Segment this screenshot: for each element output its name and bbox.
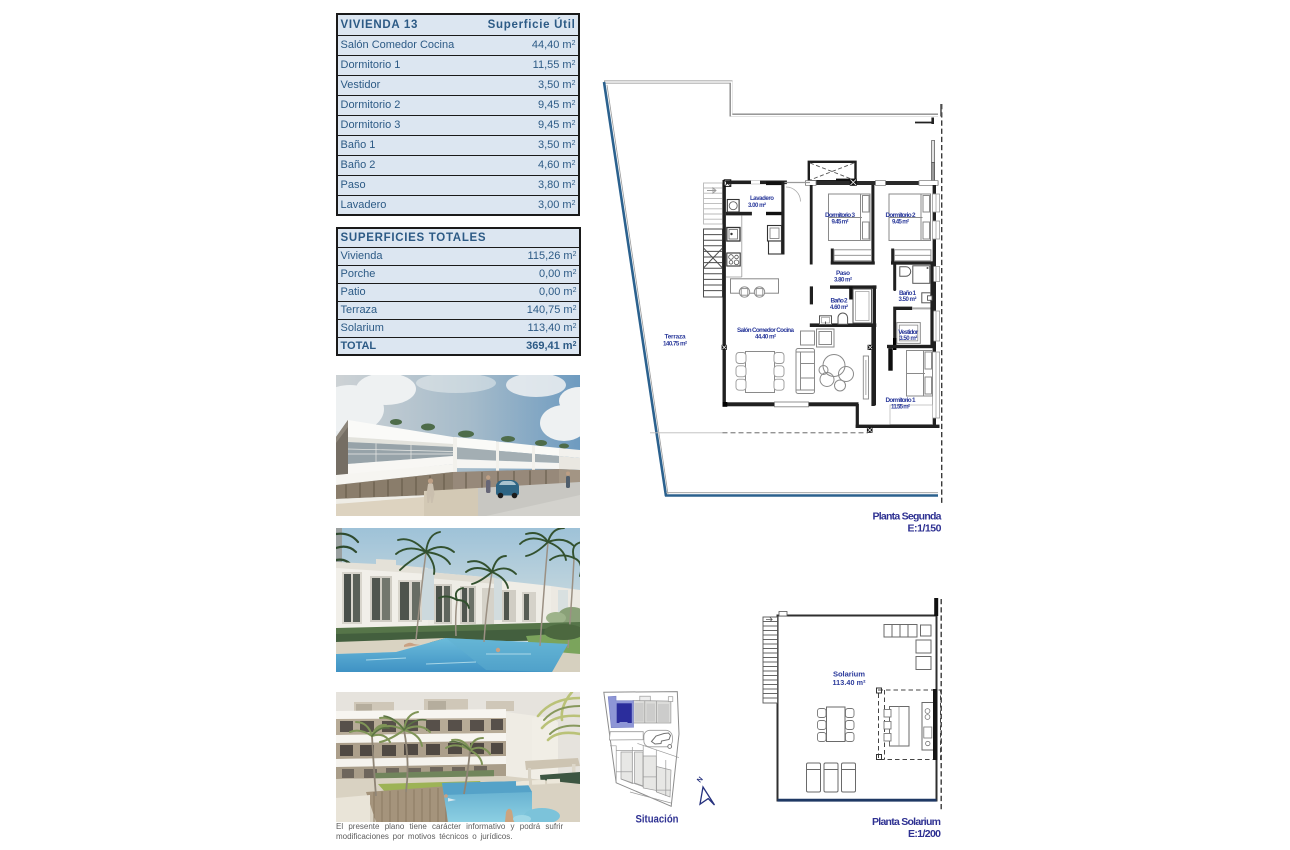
- svg-text:Terraza: Terraza: [665, 334, 686, 341]
- svg-text:3.80 m²: 3.80 m²: [834, 277, 852, 284]
- svg-text:Lavadero: Lavadero: [750, 195, 774, 202]
- svg-text:E:1/150: E:1/150: [908, 523, 942, 535]
- svg-text:44.40 m²: 44.40 m²: [755, 334, 776, 341]
- svg-text:Planta Solarium: Planta Solarium: [872, 816, 941, 828]
- svg-text:3.50 m²: 3.50 m²: [899, 335, 917, 342]
- svg-text:140.75 m²: 140.75 m²: [663, 341, 687, 348]
- svg-text:E:1/200: E:1/200: [908, 828, 941, 840]
- svg-text:11.55 m²: 11.55 m²: [891, 404, 910, 411]
- svg-text:113.40 m²: 113.40 m²: [833, 678, 867, 687]
- svg-text:4.60 m²: 4.60 m²: [830, 304, 848, 311]
- svg-text:Planta Segunda: Planta Segunda: [873, 511, 942, 523]
- svg-text:3.00 m²: 3.00 m²: [748, 202, 766, 209]
- svg-text:Situación: Situación: [636, 814, 679, 826]
- svg-text:9.45 m²: 9.45 m²: [832, 218, 849, 225]
- svg-text:3.50 m²: 3.50 m²: [899, 296, 917, 303]
- svg-text:9.45 m²: 9.45 m²: [892, 218, 909, 225]
- svg-text:N: N: [696, 776, 705, 784]
